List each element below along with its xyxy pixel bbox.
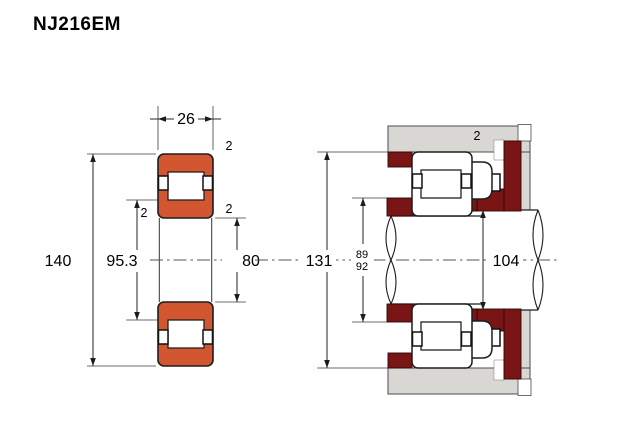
housing-shoulder-top xyxy=(388,152,412,167)
housing-step-top xyxy=(518,125,531,142)
locating-ring-bottom xyxy=(504,309,521,379)
drawing-svg: 26 140 95.3 xyxy=(0,0,640,440)
chamfer-inner-left-label: 2 xyxy=(141,206,148,220)
shaft-shoulder-bottom xyxy=(387,304,413,322)
housing-ring-gap-top xyxy=(494,140,504,160)
mounted-cage-top-right xyxy=(462,174,472,188)
chamfer-inner-right-label: 2 xyxy=(226,202,233,216)
roller-bottom xyxy=(168,320,204,348)
mounted-cage-bottom-right xyxy=(462,332,472,346)
dim-outer-diameter-label: 140 xyxy=(45,253,72,270)
mounting-view: 131 89 92 104 xyxy=(255,125,560,396)
dim-rib-diameter-label: 95.3 xyxy=(106,253,137,270)
mounted-roller-top xyxy=(421,170,461,198)
dim-rib-diameter: 95.3 xyxy=(103,200,158,320)
dim-bore-diameter-label: 80 xyxy=(242,253,260,270)
cage-bottom-right xyxy=(203,330,213,344)
page-title: NJ216EM xyxy=(33,14,121,36)
bearing-drawing-page: NJ216EM xyxy=(0,0,640,440)
cage-bottom-left xyxy=(159,330,169,344)
housing-shoulder-bottom xyxy=(388,353,412,368)
dim-width: 26 xyxy=(150,106,221,150)
chamfer-outer-label: 2 xyxy=(226,139,233,153)
mounted-roller-bottom xyxy=(421,322,461,350)
housing-chamfer-label: 2 xyxy=(474,129,481,143)
shaft-shoulder-top xyxy=(387,198,413,216)
cage-top-right xyxy=(203,176,213,190)
mounted-cage-top-left xyxy=(413,174,423,188)
bearing-section-view: 26 140 95.3 xyxy=(45,106,263,366)
housing-ring-gap-bottom xyxy=(494,360,504,380)
dim-shaft-abutment-upper-label: 89 xyxy=(356,249,368,261)
housing-step-bottom xyxy=(518,379,531,396)
mounted-cage-bottom-left xyxy=(413,332,423,346)
dim-width-label: 26 xyxy=(177,111,195,128)
dim-housing-abutment-label: 131 xyxy=(306,253,333,270)
dim-shaft-abutment-lower-label: 92 xyxy=(356,261,368,273)
dim-shaft-diameter-label: 104 xyxy=(493,253,520,270)
roller-top xyxy=(168,172,204,200)
cage-top-left xyxy=(159,176,169,190)
locating-ring-top xyxy=(504,141,521,211)
